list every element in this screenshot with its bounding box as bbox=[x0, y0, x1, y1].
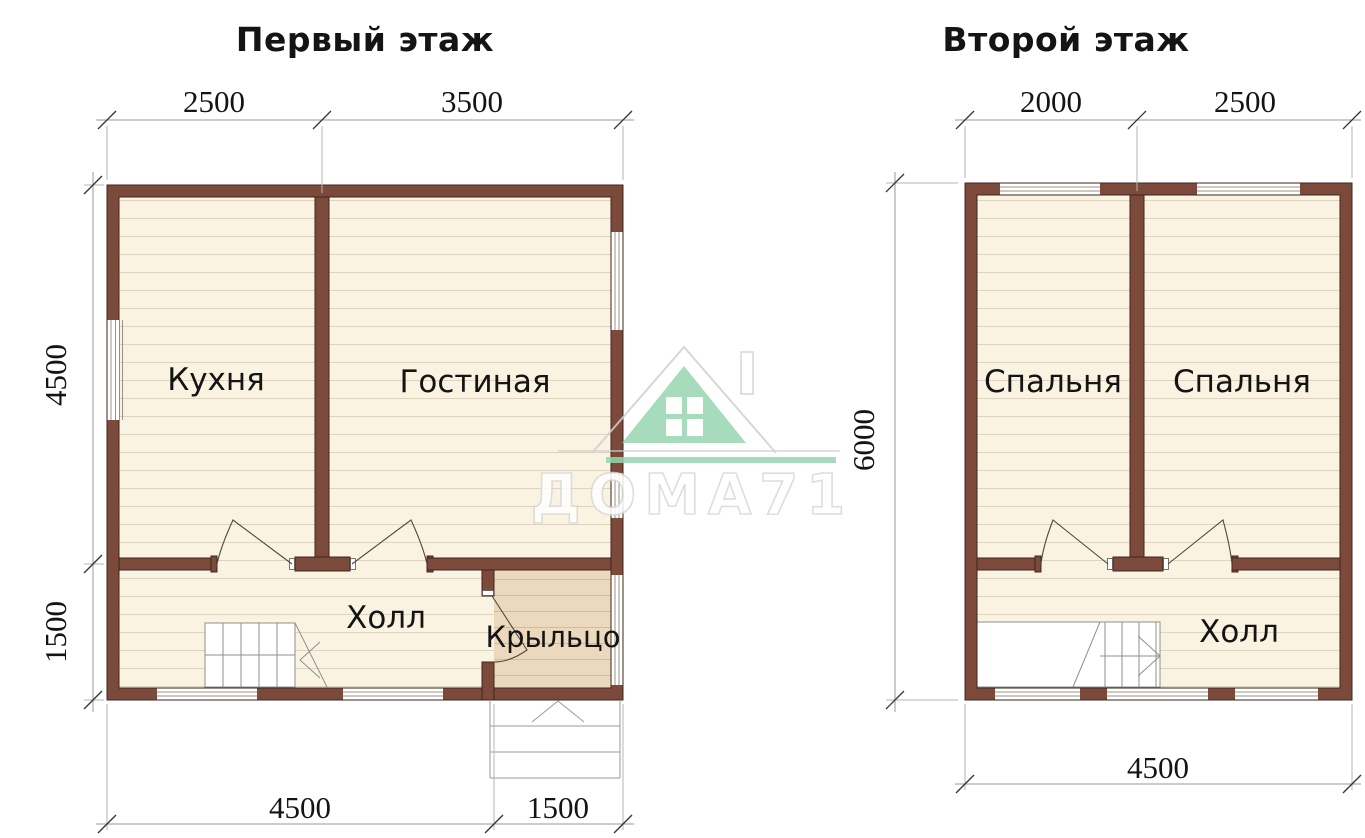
dim-bottom-main: 4500 bbox=[269, 790, 331, 825]
floor-plan-sheet: Первый этаж bbox=[0, 0, 1365, 838]
entry-steps bbox=[490, 700, 620, 778]
living-room-label: Гостиная bbox=[399, 364, 550, 400]
wall-end-cap bbox=[211, 556, 217, 572]
dim-side: 6000 bbox=[846, 409, 881, 471]
dim-top-right: 2500 bbox=[1214, 84, 1276, 119]
hall-label-first-floor: Холл bbox=[346, 600, 426, 636]
hall-wall-t-block bbox=[295, 557, 350, 571]
hall-wall-right-segment bbox=[1232, 558, 1340, 570]
kitchen-label: Кухня bbox=[167, 362, 265, 398]
wall-end-cap bbox=[1035, 556, 1041, 572]
second-floor-title: Второй этаж bbox=[942, 20, 1189, 59]
living-window-upper bbox=[611, 232, 623, 330]
dim-top-left: 2500 bbox=[183, 84, 245, 119]
hall-wall-left-segment bbox=[977, 558, 1041, 570]
hall-window-right bbox=[343, 688, 443, 700]
hall-label-second-floor: Холл bbox=[1199, 614, 1279, 650]
second-floor-plan: Второй этаж bbox=[846, 20, 1361, 793]
hall-wall-right-segment bbox=[427, 558, 611, 570]
entry-arrow bbox=[532, 701, 584, 722]
hall-wall-t-block bbox=[1113, 557, 1163, 571]
hall-wall-left-segment bbox=[119, 558, 217, 570]
dim-top-left: 2000 bbox=[1020, 84, 1082, 119]
dim-side-upper: 4500 bbox=[38, 344, 73, 406]
logo-chimney bbox=[741, 352, 753, 394]
dim-top-right: 3500 bbox=[441, 84, 503, 119]
second-floor-flooring bbox=[971, 189, 1346, 694]
porch-label: Крыльцо bbox=[485, 620, 620, 654]
porch-wall-lower-stub bbox=[482, 662, 494, 700]
staircase-second-floor bbox=[977, 622, 1160, 687]
bedroom-divider-wall bbox=[1130, 195, 1144, 564]
dim-side-lower: 1500 bbox=[38, 601, 73, 663]
bedroom2-label: Спальня bbox=[1173, 364, 1311, 400]
floor-plans-canvas: Первый этаж bbox=[0, 0, 1365, 838]
first-floor-title: Первый этаж bbox=[236, 20, 494, 59]
dim-bottom: 4500 bbox=[1127, 750, 1189, 785]
hall-window-2 bbox=[1107, 688, 1208, 700]
dim-bottom-porch: 1500 bbox=[527, 790, 589, 825]
kitchen-living-wall bbox=[315, 197, 329, 564]
bedroom1-label: Спальня bbox=[984, 364, 1122, 400]
hall-window-left bbox=[157, 688, 257, 700]
first-floor-plan: Первый этаж bbox=[38, 20, 634, 833]
hall-window-1 bbox=[995, 688, 1080, 700]
logo-house-roof bbox=[622, 366, 746, 443]
hall-window-3 bbox=[1235, 688, 1318, 700]
bedroom1-window bbox=[1000, 183, 1100, 195]
watermark-text: ДОМА71 bbox=[531, 463, 853, 528]
bedroom2-window bbox=[1197, 183, 1300, 195]
